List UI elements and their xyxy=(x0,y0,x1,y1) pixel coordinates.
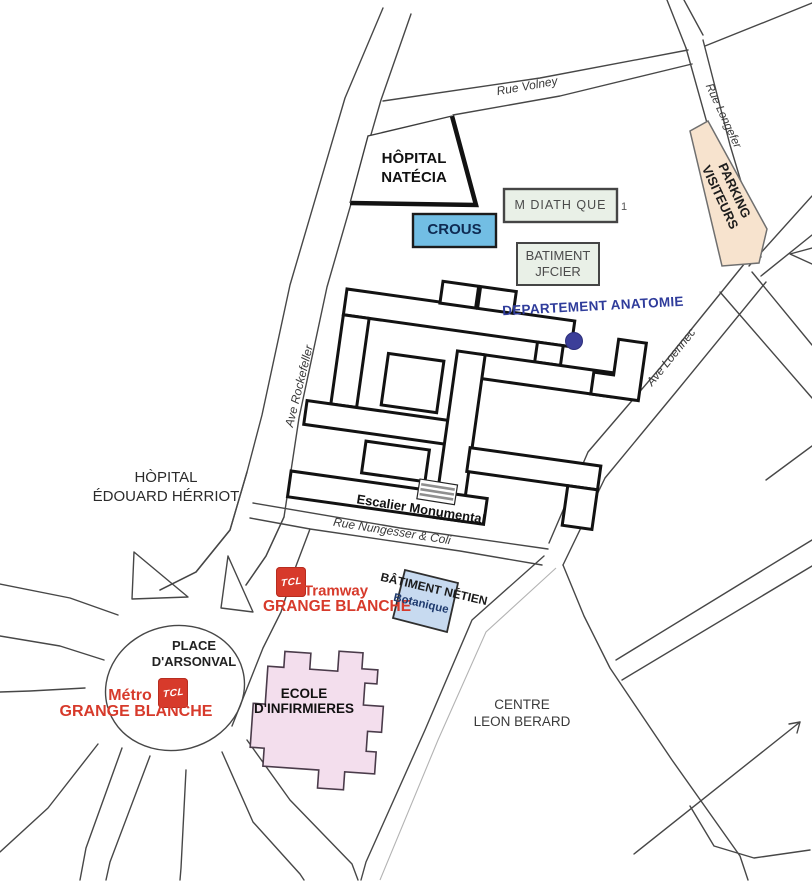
road-southeast-avenue-west-line xyxy=(222,752,304,880)
tcl-logo-text: TCL xyxy=(162,686,183,700)
road-southwest xyxy=(0,744,98,852)
road-northwest-a xyxy=(0,584,118,615)
road-southeast-continuation xyxy=(752,272,812,345)
label-metro-grange-blanche: GRANGE BLANCHE xyxy=(60,703,213,721)
label-hopital-natecia: HÔPITAL NATÉCIA xyxy=(381,149,447,187)
tramway-tcl-icon: TCL xyxy=(276,567,306,597)
label-mediatheque: M DIATH QUE xyxy=(504,189,617,222)
label-place-arsonval: PLACE D'ARSONVAL xyxy=(152,638,236,670)
label-heh-line1: HÒPITAL xyxy=(93,468,240,487)
label-arsonval-line1: PLACE xyxy=(152,638,236,654)
traffic-island-right xyxy=(221,556,253,612)
label-clb-line1: CENTRE xyxy=(474,696,571,713)
label-heh-line2: ÉDOUARD HÉRRIOT xyxy=(93,487,240,506)
label-batiment-jfcier: BATIMENT JFCIER xyxy=(517,243,599,285)
label-crous: CROUS xyxy=(413,214,496,247)
road-right-edge-segment xyxy=(720,292,812,398)
label-ecole-line1: ECOLE xyxy=(254,686,354,701)
map-canvas xyxy=(0,0,812,882)
traffic-island-left xyxy=(132,552,188,599)
road-right-edge-short xyxy=(766,446,812,480)
label-ecole-infirmieres: ECOLE D'INFIRMIERES xyxy=(254,686,354,716)
road-clb-east-line xyxy=(563,565,748,880)
road-west xyxy=(0,688,85,692)
label-batiment-jfcier-line1: BATIMENT xyxy=(526,248,591,264)
label-hopital-edouard-herriot: HÒPITAL ÉDOUARD HÉRRIOT xyxy=(93,468,240,506)
label-arsonval-line2: D'ARSONVAL xyxy=(152,654,236,670)
label-tramway-grange-blanche: GRANGE BLANCHE xyxy=(263,598,411,616)
campus-map: Rue Volney Rue Longefer Ave Rockefeller … xyxy=(0,0,812,882)
label-centre-leon-berard: CENTRE LEON BERARD xyxy=(474,696,571,730)
road-northwest-b xyxy=(0,636,104,660)
label-clb-line2: LEON BERARD xyxy=(474,713,571,730)
label-hopital-natecia-line2: NATÉCIA xyxy=(381,168,447,187)
tcl-logo-text: TCL xyxy=(280,575,301,589)
label-tramway: Tramway xyxy=(304,583,368,600)
road-bottom-right-jog xyxy=(690,806,810,858)
road-east-branch-a xyxy=(616,540,812,660)
road-north-street-b xyxy=(684,0,703,35)
anatomie-location-dot xyxy=(566,333,583,350)
road-south-exit-3 xyxy=(180,770,186,880)
road-east-fork-b xyxy=(761,235,812,276)
label-batiment-jfcier-line2: JFCIER xyxy=(535,264,581,280)
road-north-street-a xyxy=(667,0,686,48)
road-rue-volney-northeast-continuation xyxy=(705,3,812,46)
road-south-exit-1 xyxy=(80,748,122,880)
label-ecole-line2: D'INFIRMIERES xyxy=(254,701,354,716)
road-east-branch-b xyxy=(622,566,812,680)
label-mediatheque-note: 1 xyxy=(621,201,627,213)
label-hopital-natecia-line1: HÔPITAL xyxy=(381,149,447,168)
